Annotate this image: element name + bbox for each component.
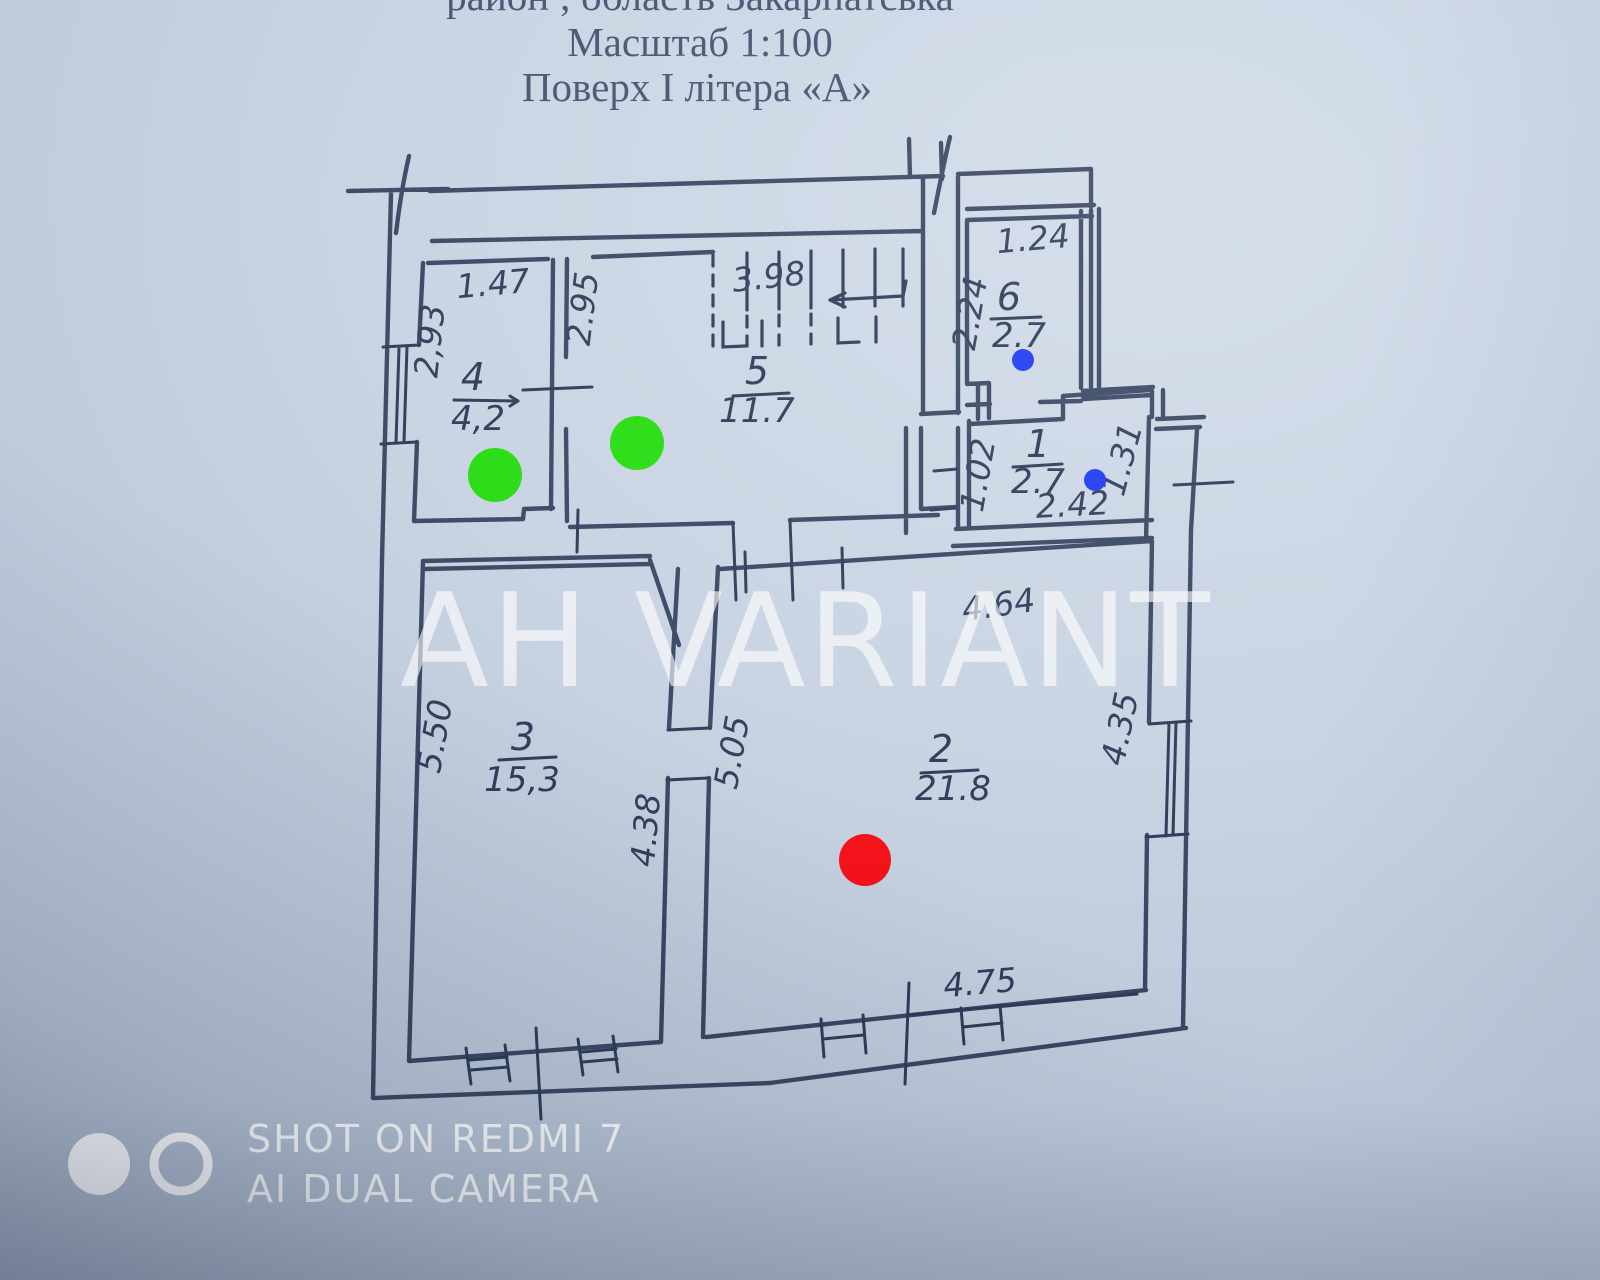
camera-logo-filled-circle-icon xyxy=(68,1133,130,1195)
camera-watermark-line1: SHOT ON REDMI 7 xyxy=(247,1117,625,1161)
room-1-number: 1 xyxy=(1026,422,1050,466)
header-district-line: район ; область Закарпатська xyxy=(446,0,954,19)
blue-dot-icon xyxy=(1084,469,1106,491)
header-floor-line: Поверх І літера «А» xyxy=(522,64,872,110)
room-3-number: 3 xyxy=(511,715,535,759)
room-3-area: 15,3 xyxy=(484,760,560,800)
dim-room5-top: 3.98 xyxy=(730,253,807,299)
room-1-area: 2.7 xyxy=(1011,462,1065,502)
dim-room4-top: 1.47 xyxy=(455,261,532,306)
header-scale-line: Масштаб 1:100 xyxy=(567,19,833,65)
room-6-number: 6 xyxy=(997,275,1021,319)
dim-room6-top: 1.24 xyxy=(995,216,1072,261)
camera-watermark-line2: AI DUAL CAMERA xyxy=(247,1167,601,1211)
room-2-number: 2 xyxy=(929,727,953,771)
room-2-area: 21.8 xyxy=(915,769,991,809)
camera-logo-outline-circle-icon xyxy=(154,1137,208,1191)
document-header: район ; область Закарпатська Масштаб 1:1… xyxy=(446,0,954,110)
dim-room2-bottom: 4.75 xyxy=(942,960,1019,1005)
dim-room6-left: 2.24 xyxy=(944,273,995,352)
dim-room3-right: 4.38 xyxy=(623,792,668,869)
dim-room2-left: 5.05 xyxy=(706,712,757,791)
agency-watermark: AH VARIANT xyxy=(400,565,1212,717)
room-4-area: 4,2 xyxy=(451,399,505,439)
green-dot-icon xyxy=(610,416,664,470)
room-4-number: 4 xyxy=(461,355,485,399)
red-dot-icon xyxy=(839,834,891,886)
floor-plan-svg: район ; область Закарпатська Масштаб 1:1… xyxy=(0,0,1600,1280)
dim-room4-left: 2,93 xyxy=(406,302,452,379)
camera-watermark: SHOT ON REDMI 7 AI DUAL CAMERA xyxy=(68,1117,625,1211)
floor-plan-photo: район ; область Закарпатська Масштаб 1:1… xyxy=(0,0,1600,1280)
green-dot-icon xyxy=(468,448,522,502)
room-5-area: 11.7 xyxy=(719,391,795,431)
blue-dot-icon xyxy=(1012,349,1034,371)
room-5-number: 5 xyxy=(745,349,769,393)
dim-room5-left: 2.95 xyxy=(559,270,607,348)
room-labels: 4 4,2 5 11.7 6 2.7 1 2.7 3 15,3 2 21.8 xyxy=(451,275,1065,809)
